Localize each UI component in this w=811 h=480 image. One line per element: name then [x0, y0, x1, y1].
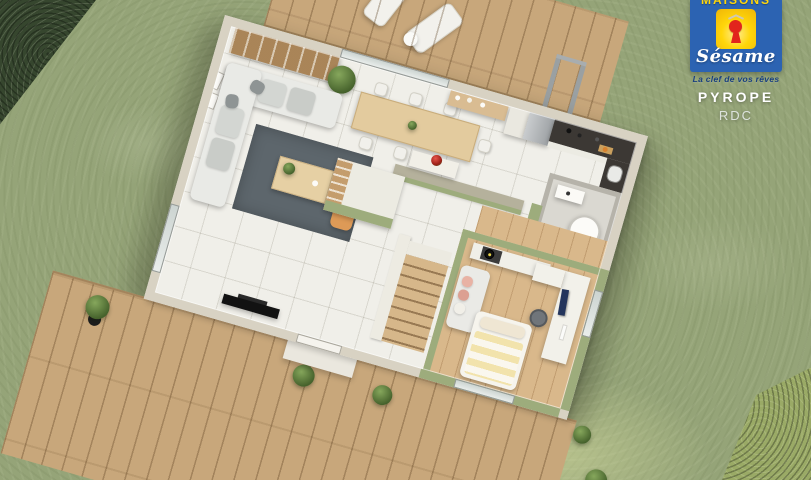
plan-name-label: PYROPE: [688, 89, 784, 105]
floor-label: RDC: [688, 108, 784, 123]
hedge-bottom-right: [640, 355, 811, 480]
hedge-top-left: [0, 0, 120, 135]
brand-card: MAISONS Sésame La clef de vos rêves PYRO…: [688, 0, 784, 130]
roof-icon: [735, 14, 744, 20]
brand-name: Sésame: [690, 46, 782, 67]
deck-side-table: [402, 30, 419, 47]
deck-plant: [583, 467, 610, 480]
brand-top-word: MAISONS: [690, 0, 782, 7]
sun-lounger: [361, 0, 416, 29]
sun-lounger: [404, 1, 465, 55]
brand-panel: MAISONS Sésame: [690, 0, 782, 72]
garden-scene: MAISONS Sésame La clef de vos rêves PYRO…: [0, 0, 811, 480]
brand-logo-square: [716, 9, 756, 49]
brand-tagline: La clef de vos rêves: [688, 74, 784, 84]
